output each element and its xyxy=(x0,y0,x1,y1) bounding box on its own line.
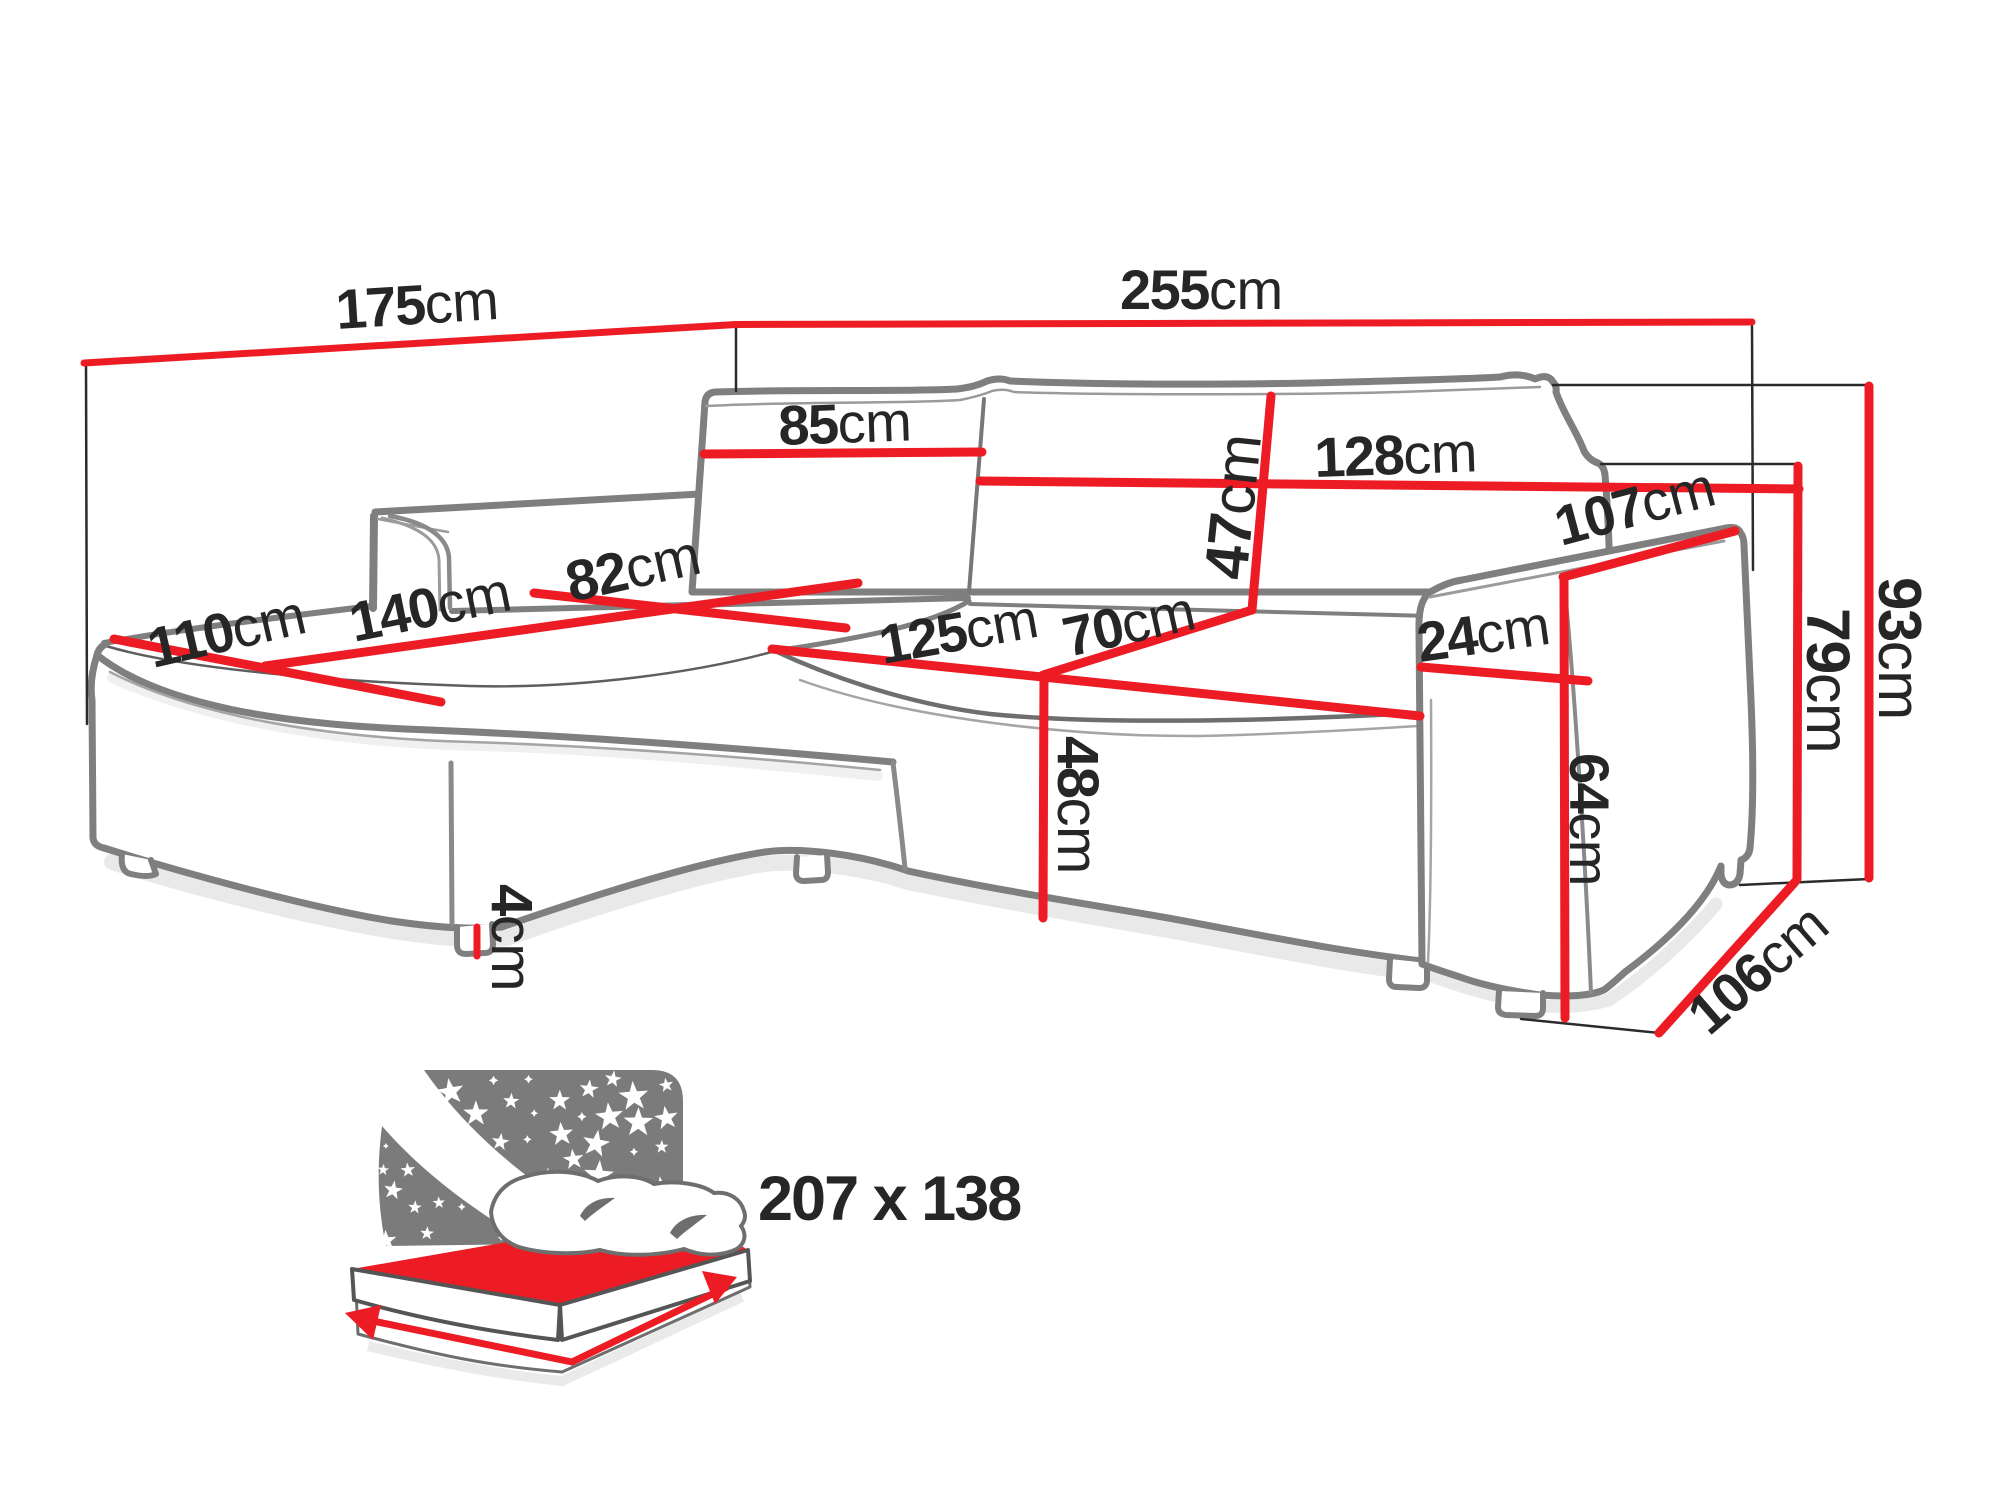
svg-text:79cm: 79cm xyxy=(1794,608,1862,753)
svg-text:255cm: 255cm xyxy=(1120,258,1283,321)
svg-text:128cm: 128cm xyxy=(1313,420,1478,489)
svg-text:85cm: 85cm xyxy=(777,389,912,457)
svg-text:4cm: 4cm xyxy=(479,884,544,991)
svg-text:175cm: 175cm xyxy=(334,268,500,341)
svg-text:93cm: 93cm xyxy=(1866,577,1933,720)
svg-text:64cm: 64cm xyxy=(1558,753,1621,886)
svg-text:48cm: 48cm xyxy=(1045,736,1110,874)
svg-text:82cm: 82cm xyxy=(560,523,706,615)
svg-text:207 x 138: 207 x 138 xyxy=(758,1164,1021,1234)
